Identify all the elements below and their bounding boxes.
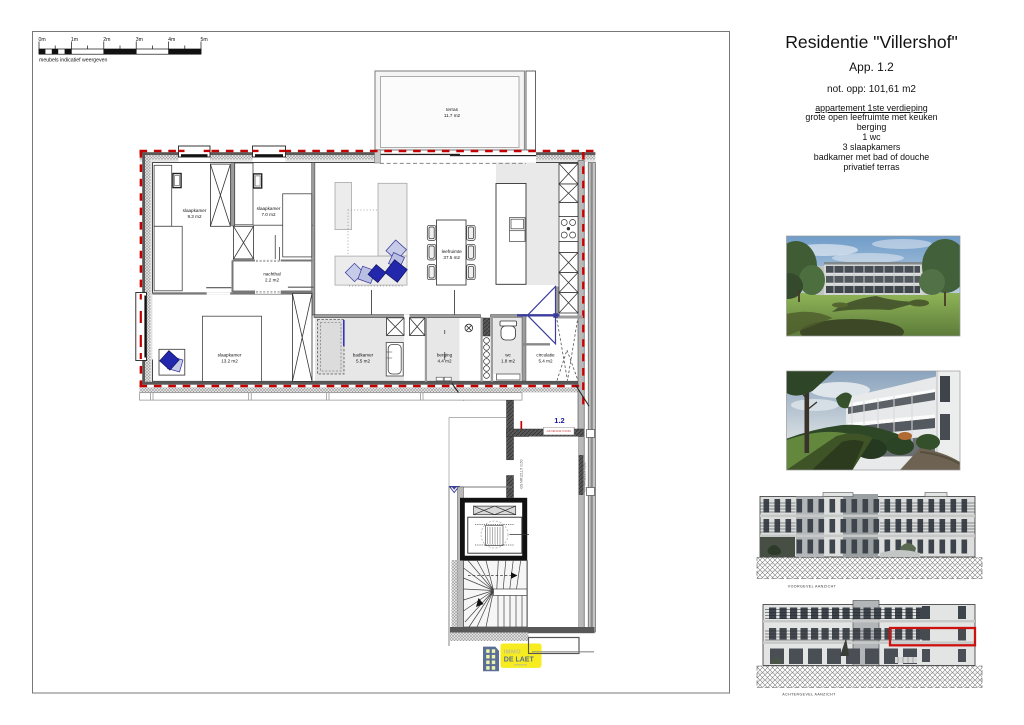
svg-text:slaapkamer: slaapkamer: [257, 206, 281, 211]
svg-text:wc: wc: [505, 353, 511, 358]
svg-text:GS NR1211.5 0150: GS NR1211.5 0150: [520, 459, 524, 488]
svg-text:DE LAET: DE LAET: [504, 657, 535, 664]
svg-text:slaapkamer: slaapkamer: [218, 353, 242, 358]
svg-text:4.4 m2: 4.4 m2: [437, 359, 451, 364]
svg-text:meubels indicatief weergeven: meubels indicatief weergeven: [39, 58, 107, 64]
svg-text:leefruimte: leefruimte: [442, 249, 463, 254]
svg-text:5.5 m2: 5.5 m2: [356, 359, 370, 364]
svg-text:11.7 m2: 11.7 m2: [444, 113, 461, 118]
svg-text:IMMO: IMMO: [504, 650, 521, 656]
svg-text:VOORGEVEL AANZICHT: VOORGEVEL AANZICHT: [788, 585, 837, 589]
svg-text:ACHTERGEVEL AANZICHT: ACHTERGEVEL AANZICHT: [782, 693, 836, 697]
svg-text:1m: 1m: [71, 37, 78, 43]
svg-text:GS NR1211.5 0150: GS NR1211.5 0150: [583, 462, 587, 491]
svg-text:slaapkamer: slaapkamer: [183, 208, 207, 213]
svg-text:1.2: 1.2: [554, 416, 564, 425]
svg-text:nachthal: nachthal: [263, 272, 280, 277]
svg-text:berging: berging: [437, 353, 453, 358]
svg-text:circulatie: circulatie: [536, 353, 555, 358]
svg-text:5.4 m2: 5.4 m2: [538, 359, 552, 364]
svg-text:2m: 2m: [103, 37, 110, 43]
svg-text:1.8 m2: 1.8 m2: [501, 359, 515, 364]
svg-text:0m: 0m: [39, 37, 46, 43]
svg-text:2.2 m2: 2.2 m2: [265, 278, 279, 283]
svg-text:4m: 4m: [168, 37, 175, 43]
svg-text:GS NR1211.5 0150: GS NR1211.5 0150: [547, 429, 572, 433]
svg-text:5m: 5m: [201, 37, 208, 43]
svg-text:37.5 m2: 37.5 m2: [443, 255, 460, 260]
svg-text:7.0 m2: 7.0 m2: [261, 212, 275, 217]
svg-text:terras: terras: [446, 107, 458, 112]
svg-text:3m: 3m: [136, 37, 143, 43]
svg-text:9.3 m2: 9.3 m2: [187, 214, 201, 219]
svg-text:badkamer: badkamer: [353, 353, 374, 358]
svg-text:13.2 m2: 13.2 m2: [221, 359, 238, 364]
